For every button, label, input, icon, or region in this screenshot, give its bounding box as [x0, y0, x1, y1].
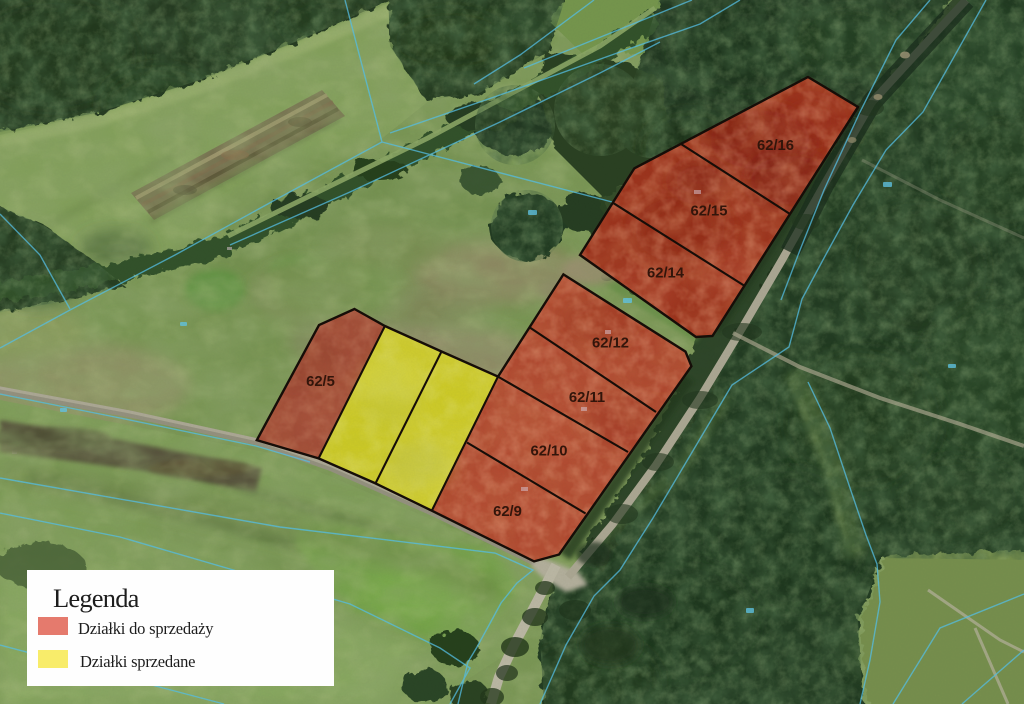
svg-text:Działki do sprzedaży: Działki do sprzedaży [78, 619, 214, 638]
svg-text:Działki sprzedane: Działki sprzedane [80, 652, 195, 671]
svg-text:Legenda: Legenda [53, 583, 140, 613]
